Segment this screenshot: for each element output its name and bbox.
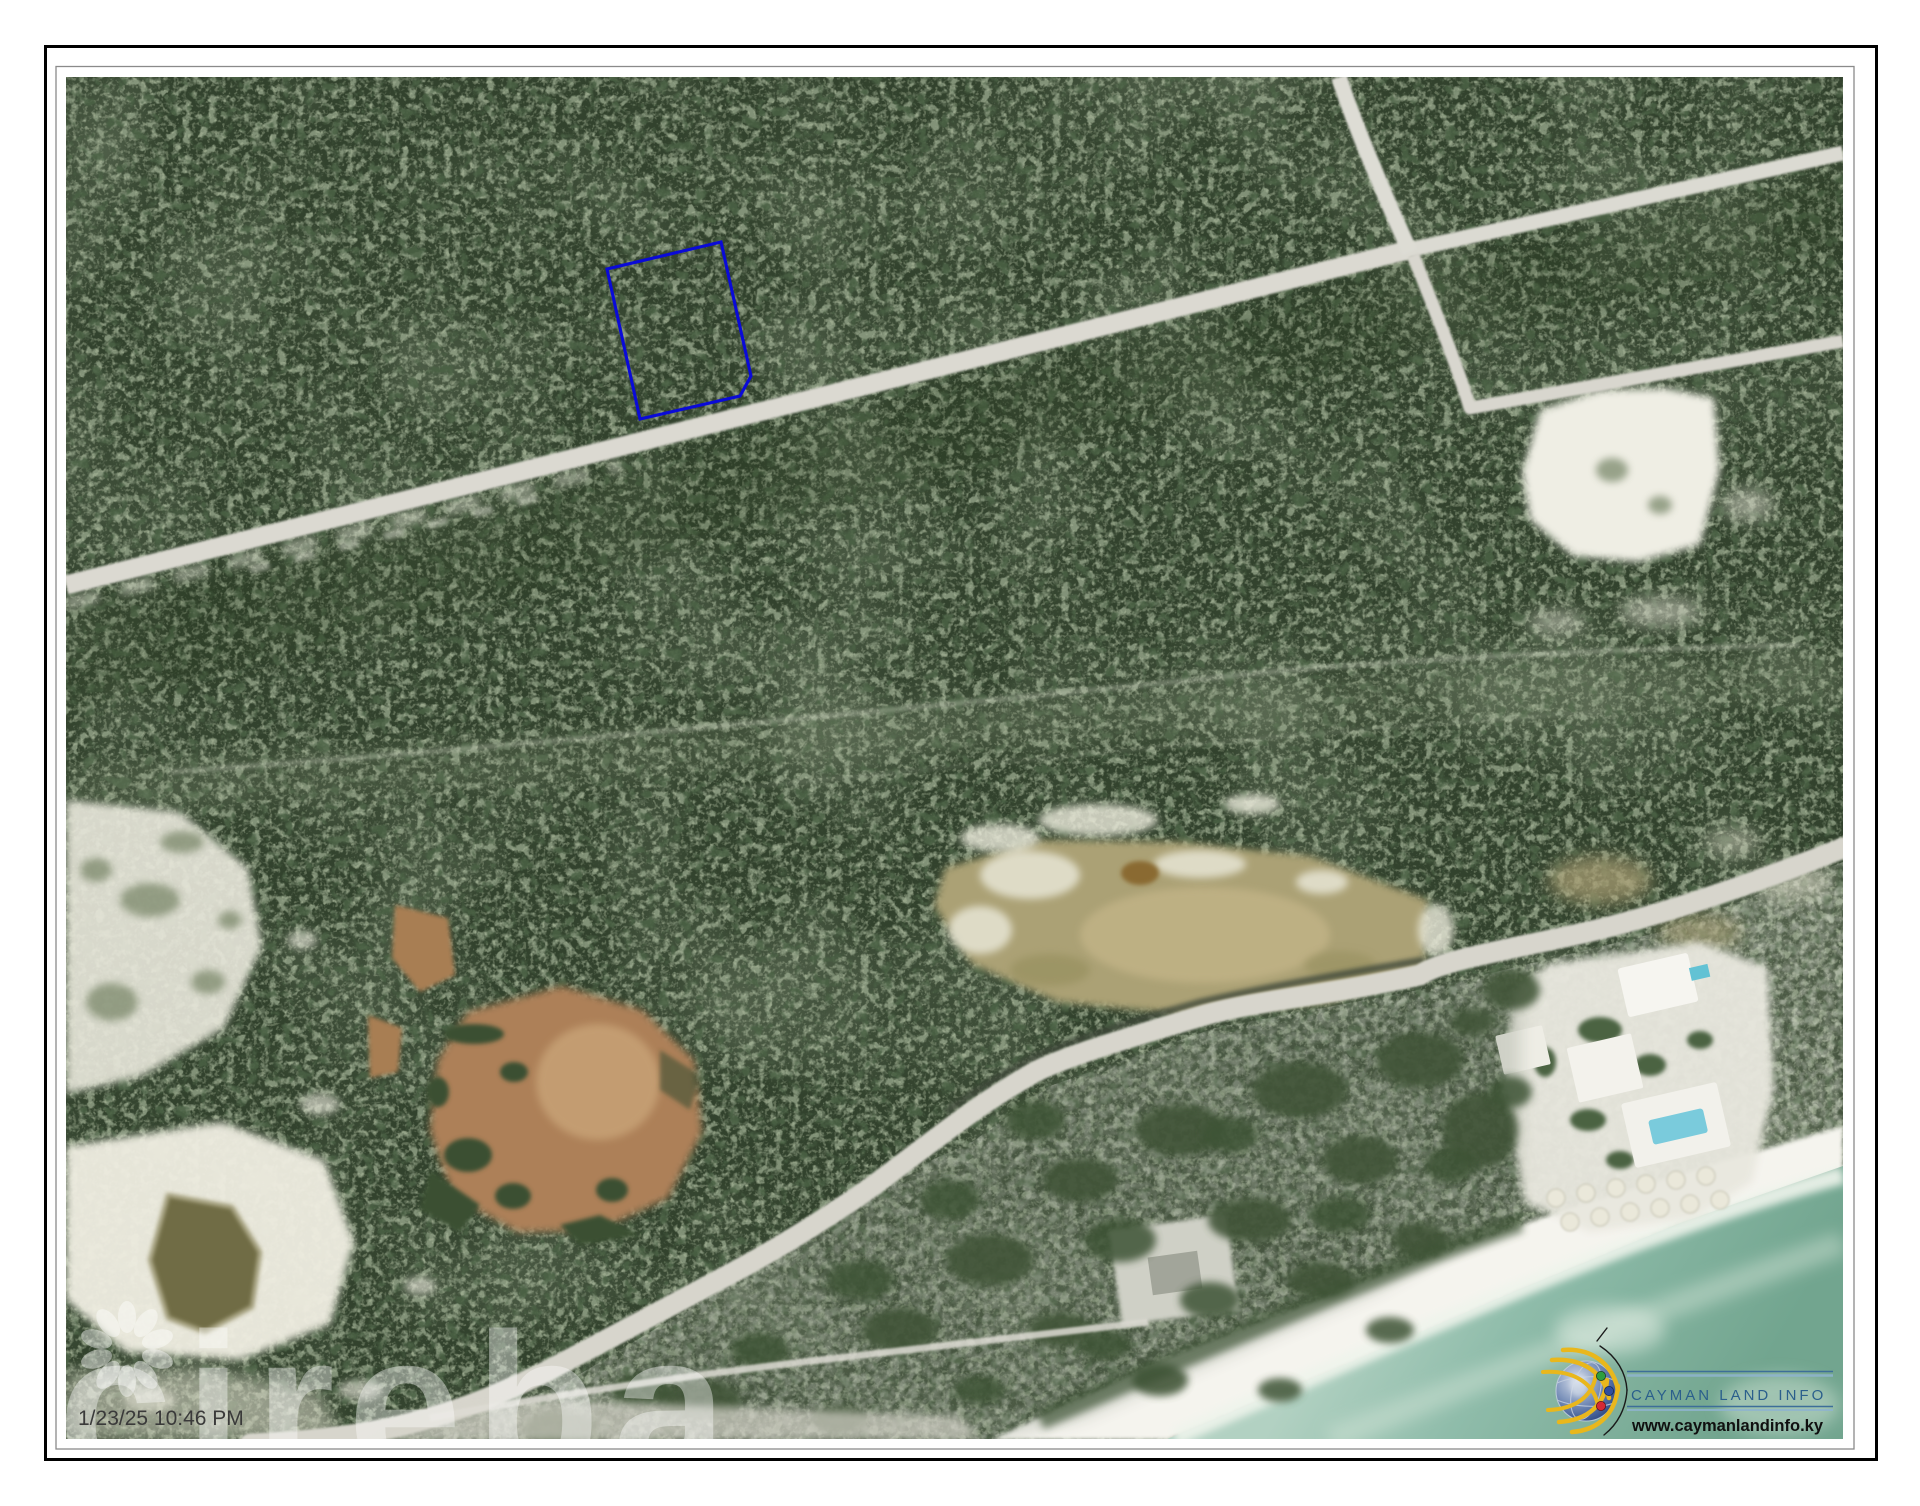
svg-text:CAYMAN LAND INFO: CAYMAN LAND INFO	[1631, 1387, 1826, 1404]
svg-text:www.caymanlandinfo.ky: www.caymanlandinfo.ky	[1631, 1417, 1824, 1435]
svg-text:1/23/25 10:46 PM: 1/23/25 10:46 PM	[78, 1407, 244, 1430]
